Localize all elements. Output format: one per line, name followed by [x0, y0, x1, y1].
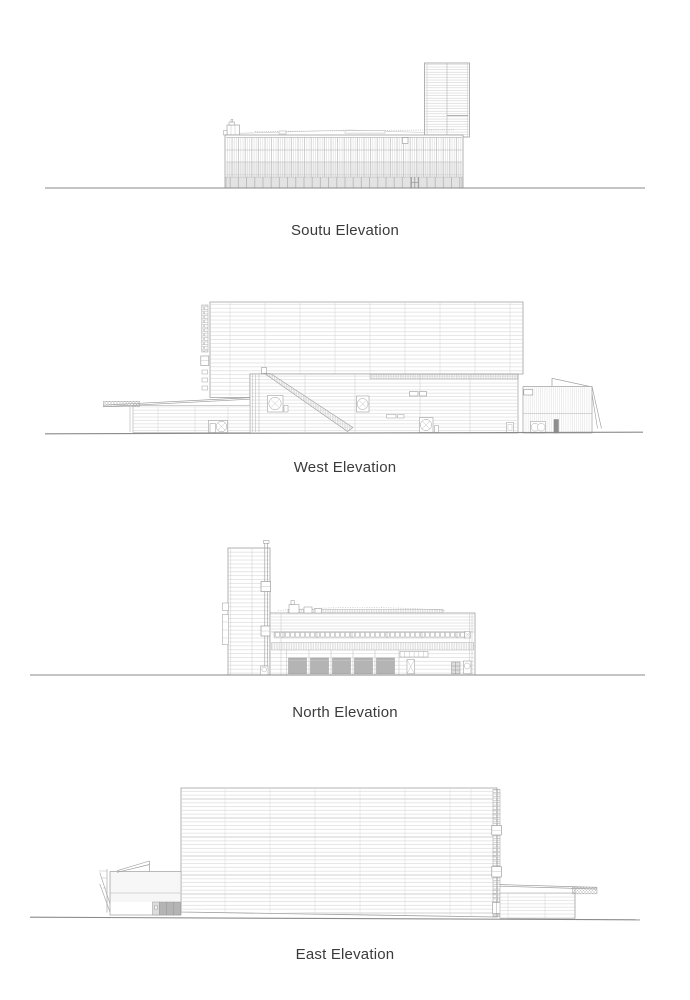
- elevation-sheet: Soutu Elevation: [0, 0, 690, 1000]
- south-base-colonnade: [226, 177, 462, 188]
- west-midrise-block: [250, 374, 518, 433]
- west-right-annex: [523, 378, 602, 433]
- east-annex-doors: [153, 902, 181, 915]
- south-penthouse: [224, 120, 240, 136]
- south-stage-tower: [425, 63, 470, 137]
- south-elevation-drawing: [0, 40, 690, 210]
- north-elevation-drawing: [0, 520, 690, 685]
- east-elevation-drawing: [0, 760, 690, 930]
- east-right-wing: [500, 885, 597, 919]
- north-stage-tower: [222, 548, 270, 675]
- west-elevation-caption: West Elevation: [0, 459, 690, 477]
- west-left-wing: [103, 398, 250, 433]
- west-elevation-drawing: [0, 280, 690, 445]
- south-roof-equipment: [230, 130, 455, 134]
- south-elevation-caption: Soutu Elevation: [0, 222, 690, 240]
- north-elevation-caption: North Elevation: [0, 704, 690, 722]
- west-ladder-strip: [201, 305, 209, 390]
- east-main-hall: [181, 788, 497, 917]
- east-elevation-caption: East Elevation: [0, 946, 690, 964]
